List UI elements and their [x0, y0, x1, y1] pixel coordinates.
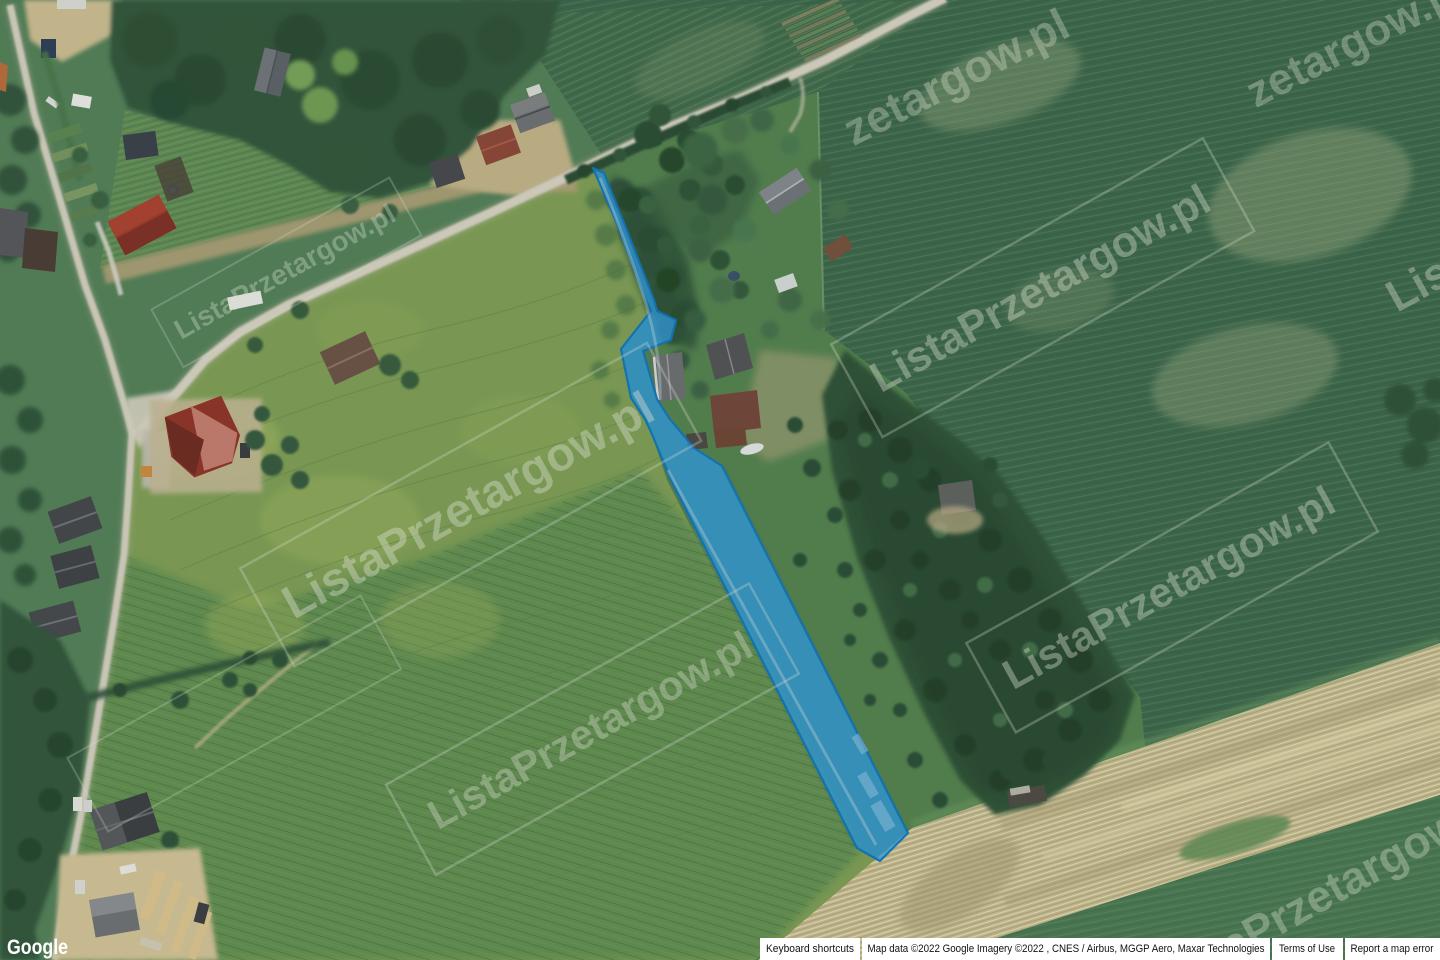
svg-text:Keyboard shortcuts: Keyboard shortcuts — [766, 943, 854, 955]
svg-text:Report a map error: Report a map error — [1351, 943, 1434, 955]
svg-text:Terms of Use: Terms of Use — [1279, 943, 1335, 955]
svg-text:Google: Google — [7, 936, 68, 959]
svg-text:Map data ©2022 Google Imagery: Map data ©2022 Google Imagery ©2022 , CN… — [868, 943, 1265, 955]
